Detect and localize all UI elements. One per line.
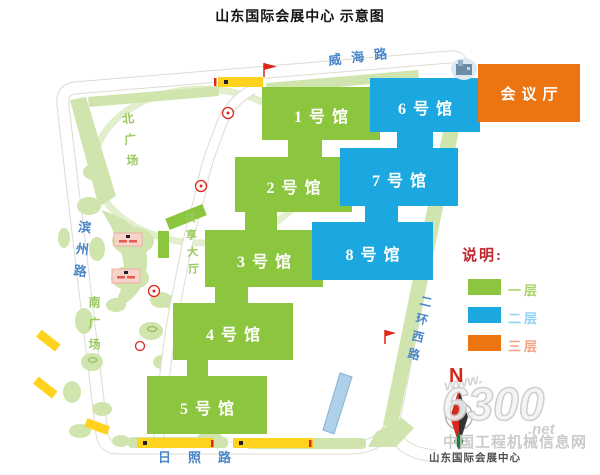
tree-blob bbox=[63, 381, 81, 403]
legend-label-floor1: 一层 bbox=[508, 280, 540, 299]
booth bbox=[158, 231, 169, 258]
hall-6-label: 6号馆 bbox=[370, 95, 480, 119]
hall-3-label: 3号馆 bbox=[205, 248, 323, 272]
hall-2-label: 2号馆 bbox=[235, 174, 352, 198]
tree-blob bbox=[92, 402, 112, 416]
ring-marker-3-dot bbox=[153, 290, 156, 293]
tree-blob bbox=[77, 197, 101, 215]
fountain-badge-1 bbox=[114, 233, 142, 246]
connector-2-3 bbox=[245, 210, 277, 232]
tree-blob bbox=[83, 164, 103, 180]
connector-3-4 bbox=[215, 285, 248, 306]
gate-badge-west-2 bbox=[33, 377, 57, 399]
watermark-site-name: 中国工程机械信息网 bbox=[443, 431, 587, 452]
ring-marker-1-dot bbox=[227, 112, 230, 115]
gate-badge-north bbox=[214, 77, 263, 87]
fountain-badge-2 bbox=[112, 269, 140, 283]
tree-blob bbox=[112, 435, 130, 447]
legend-swatches bbox=[468, 279, 501, 351]
green-crescent bbox=[101, 210, 147, 310]
conference-hall-label: 会议厅 bbox=[478, 83, 580, 104]
flag-marker-east bbox=[385, 330, 396, 344]
garage-ramp bbox=[323, 373, 352, 434]
hall-8-label: 8号馆 bbox=[312, 241, 433, 265]
legend-title: 说明: bbox=[462, 244, 503, 265]
hall-4-label: 4号馆 bbox=[173, 321, 293, 345]
ring-marker-2-dot bbox=[200, 185, 203, 188]
south-plaza-label: 南广场 bbox=[86, 296, 103, 376]
hall-7-label: 7号馆 bbox=[340, 167, 458, 191]
legend-label-floor3: 三层 bbox=[508, 336, 540, 355]
tree-blob bbox=[58, 228, 70, 248]
hall-5-label: 5号馆 bbox=[147, 395, 267, 419]
hall-1-label: 1号馆 bbox=[262, 103, 380, 127]
compass-n-label: N bbox=[449, 365, 463, 388]
legend-swatch-floor1 bbox=[468, 279, 501, 295]
small-building-icon bbox=[451, 58, 477, 80]
red-circle-marker bbox=[136, 342, 145, 351]
credit-text: 山东国际会展中心 bbox=[429, 450, 521, 465]
legend-swatch-floor3 bbox=[468, 335, 501, 351]
tree-blob bbox=[106, 298, 126, 312]
connector-7-8 bbox=[365, 205, 398, 224]
site-map: 山东国际会展中心 示意图 1号馆 2号馆 3号馆 4号馆 5号馆 6号馆 7号馆… bbox=[0, 0, 600, 475]
page-title: 山东国际会展中心 示意图 bbox=[0, 6, 600, 26]
road-label-south: 日照路 bbox=[158, 447, 248, 466]
legend-label-floor2: 二层 bbox=[508, 308, 540, 327]
gate-badge-west-1 bbox=[36, 330, 60, 352]
legend-swatch-floor2 bbox=[468, 307, 501, 323]
